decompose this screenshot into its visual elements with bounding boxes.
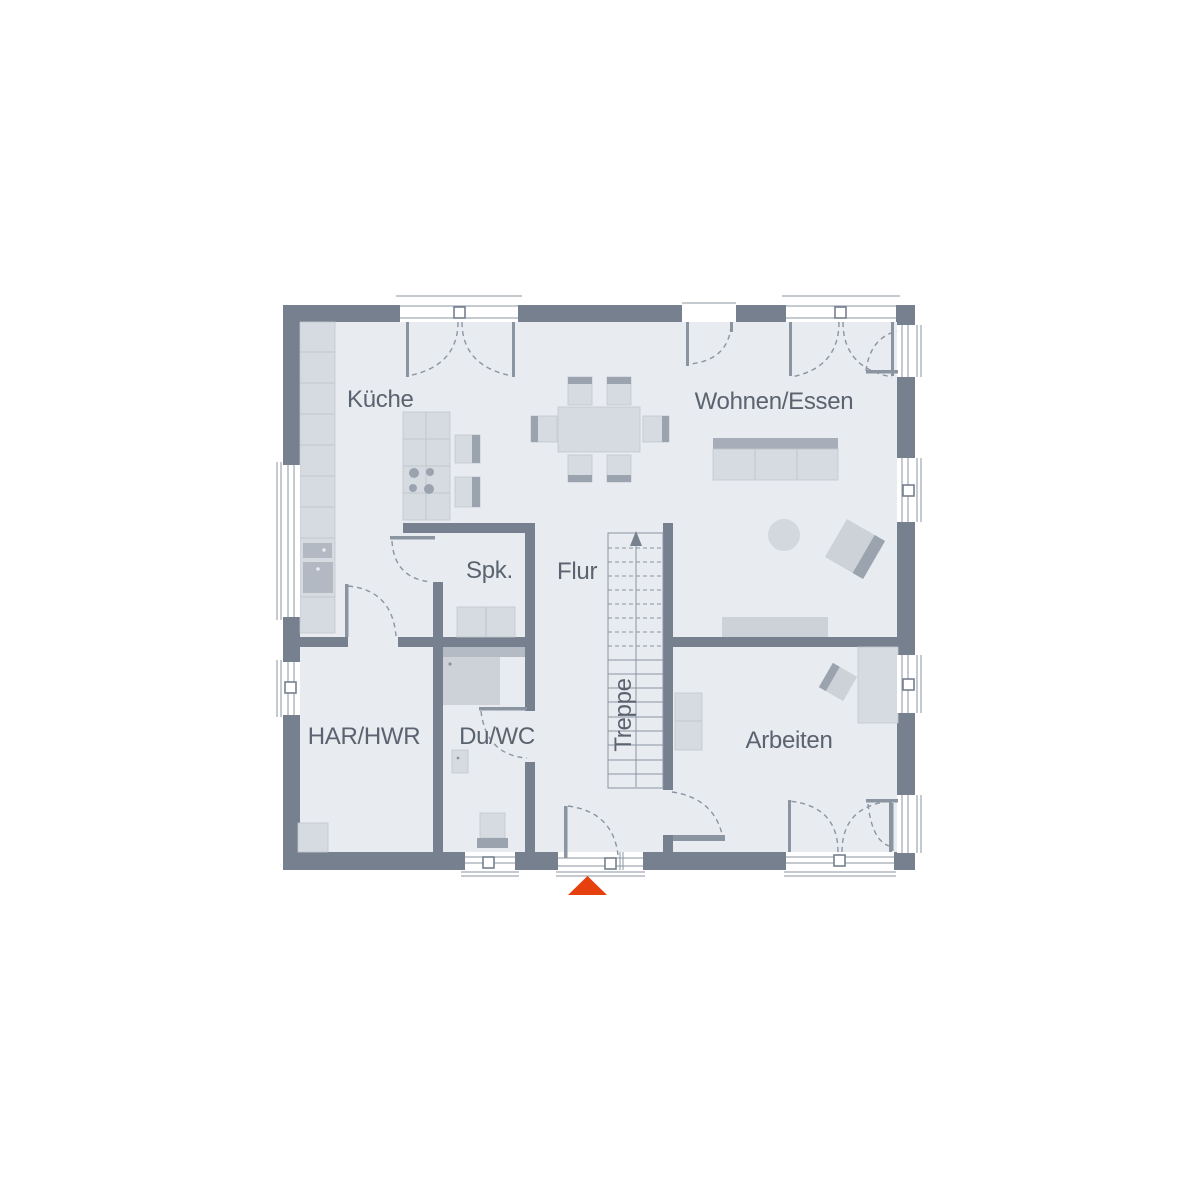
washbasin: [452, 750, 468, 773]
window-living-right: [897, 458, 923, 522]
window-marker: [454, 307, 465, 318]
kitchen-stool-1: [455, 435, 480, 463]
desk: [858, 647, 898, 723]
window-marker: [903, 679, 914, 690]
floor-plan-page: Küche Wohnen/Essen Spk. Flur Treppe HAR/…: [0, 0, 1200, 1200]
wall-flur-stub-vertical: [663, 835, 673, 852]
kitchen-appliance: [303, 562, 333, 593]
window-marker: [285, 682, 296, 693]
window-marker: [605, 858, 616, 869]
sofa: [713, 438, 838, 480]
window-utility-left: [275, 660, 300, 717]
washbasin-drain: [457, 757, 460, 760]
window-marker: [834, 855, 845, 866]
wall-kueche-har-left: [300, 637, 348, 647]
shower-partition: [443, 647, 525, 657]
window-kitchen-left: [275, 462, 300, 620]
office-cabinet: [675, 693, 702, 750]
room-label-wohnen-essen: Wohnen/Essen: [695, 388, 854, 415]
room-label-spk: Spk.: [466, 557, 513, 584]
room-label-har-hwr: HAR/HWR: [308, 723, 421, 750]
wall-duwc-right-lower: [525, 762, 535, 852]
dining-table: [558, 407, 640, 452]
room-label-arbeiten: Arbeiten: [746, 727, 833, 754]
kitchen-sink-drain: [322, 548, 326, 552]
wall-kueche-har-right: [398, 637, 535, 647]
outer-wall-right: [897, 305, 915, 870]
wall-wohnen-arbeiten: [673, 637, 898, 647]
kitchen-appliance-dot: [316, 567, 320, 571]
wall-flur-stub-horizontal: [673, 835, 725, 841]
window-bath-bottom: [461, 852, 519, 878]
sideboard: [722, 617, 828, 637]
utility-floor-item: [298, 823, 328, 852]
wall-har-duwc: [433, 647, 443, 852]
pantry-shelf: [457, 607, 515, 637]
window-office-right: [897, 655, 923, 713]
window-marker: [903, 485, 914, 496]
window-marker: [483, 857, 494, 868]
wall-spk-left: [433, 582, 443, 647]
kitchen-stool-2: [455, 477, 480, 507]
window-marker: [835, 307, 846, 318]
wall-stairs-right: [663, 523, 673, 790]
room-label-flur: Flur: [557, 558, 597, 585]
room-label-treppe: Treppe: [610, 678, 637, 751]
floor-plan-drawing: Küche Wohnen/Essen Spk. Flur Treppe HAR/…: [0, 0, 1200, 1200]
round-rug: [768, 519, 800, 551]
room-label-du-wc: Du/WC: [459, 723, 535, 750]
wall-spk-duwc-right-upper: [525, 523, 535, 711]
entrance-marker-icon: [568, 876, 607, 895]
shower-drain: [448, 662, 451, 665]
room-label-kueche: Küche: [347, 386, 414, 413]
kitchen-sink: [303, 543, 332, 558]
wall-spk-top: [403, 523, 535, 533]
toilet: [477, 813, 508, 848]
